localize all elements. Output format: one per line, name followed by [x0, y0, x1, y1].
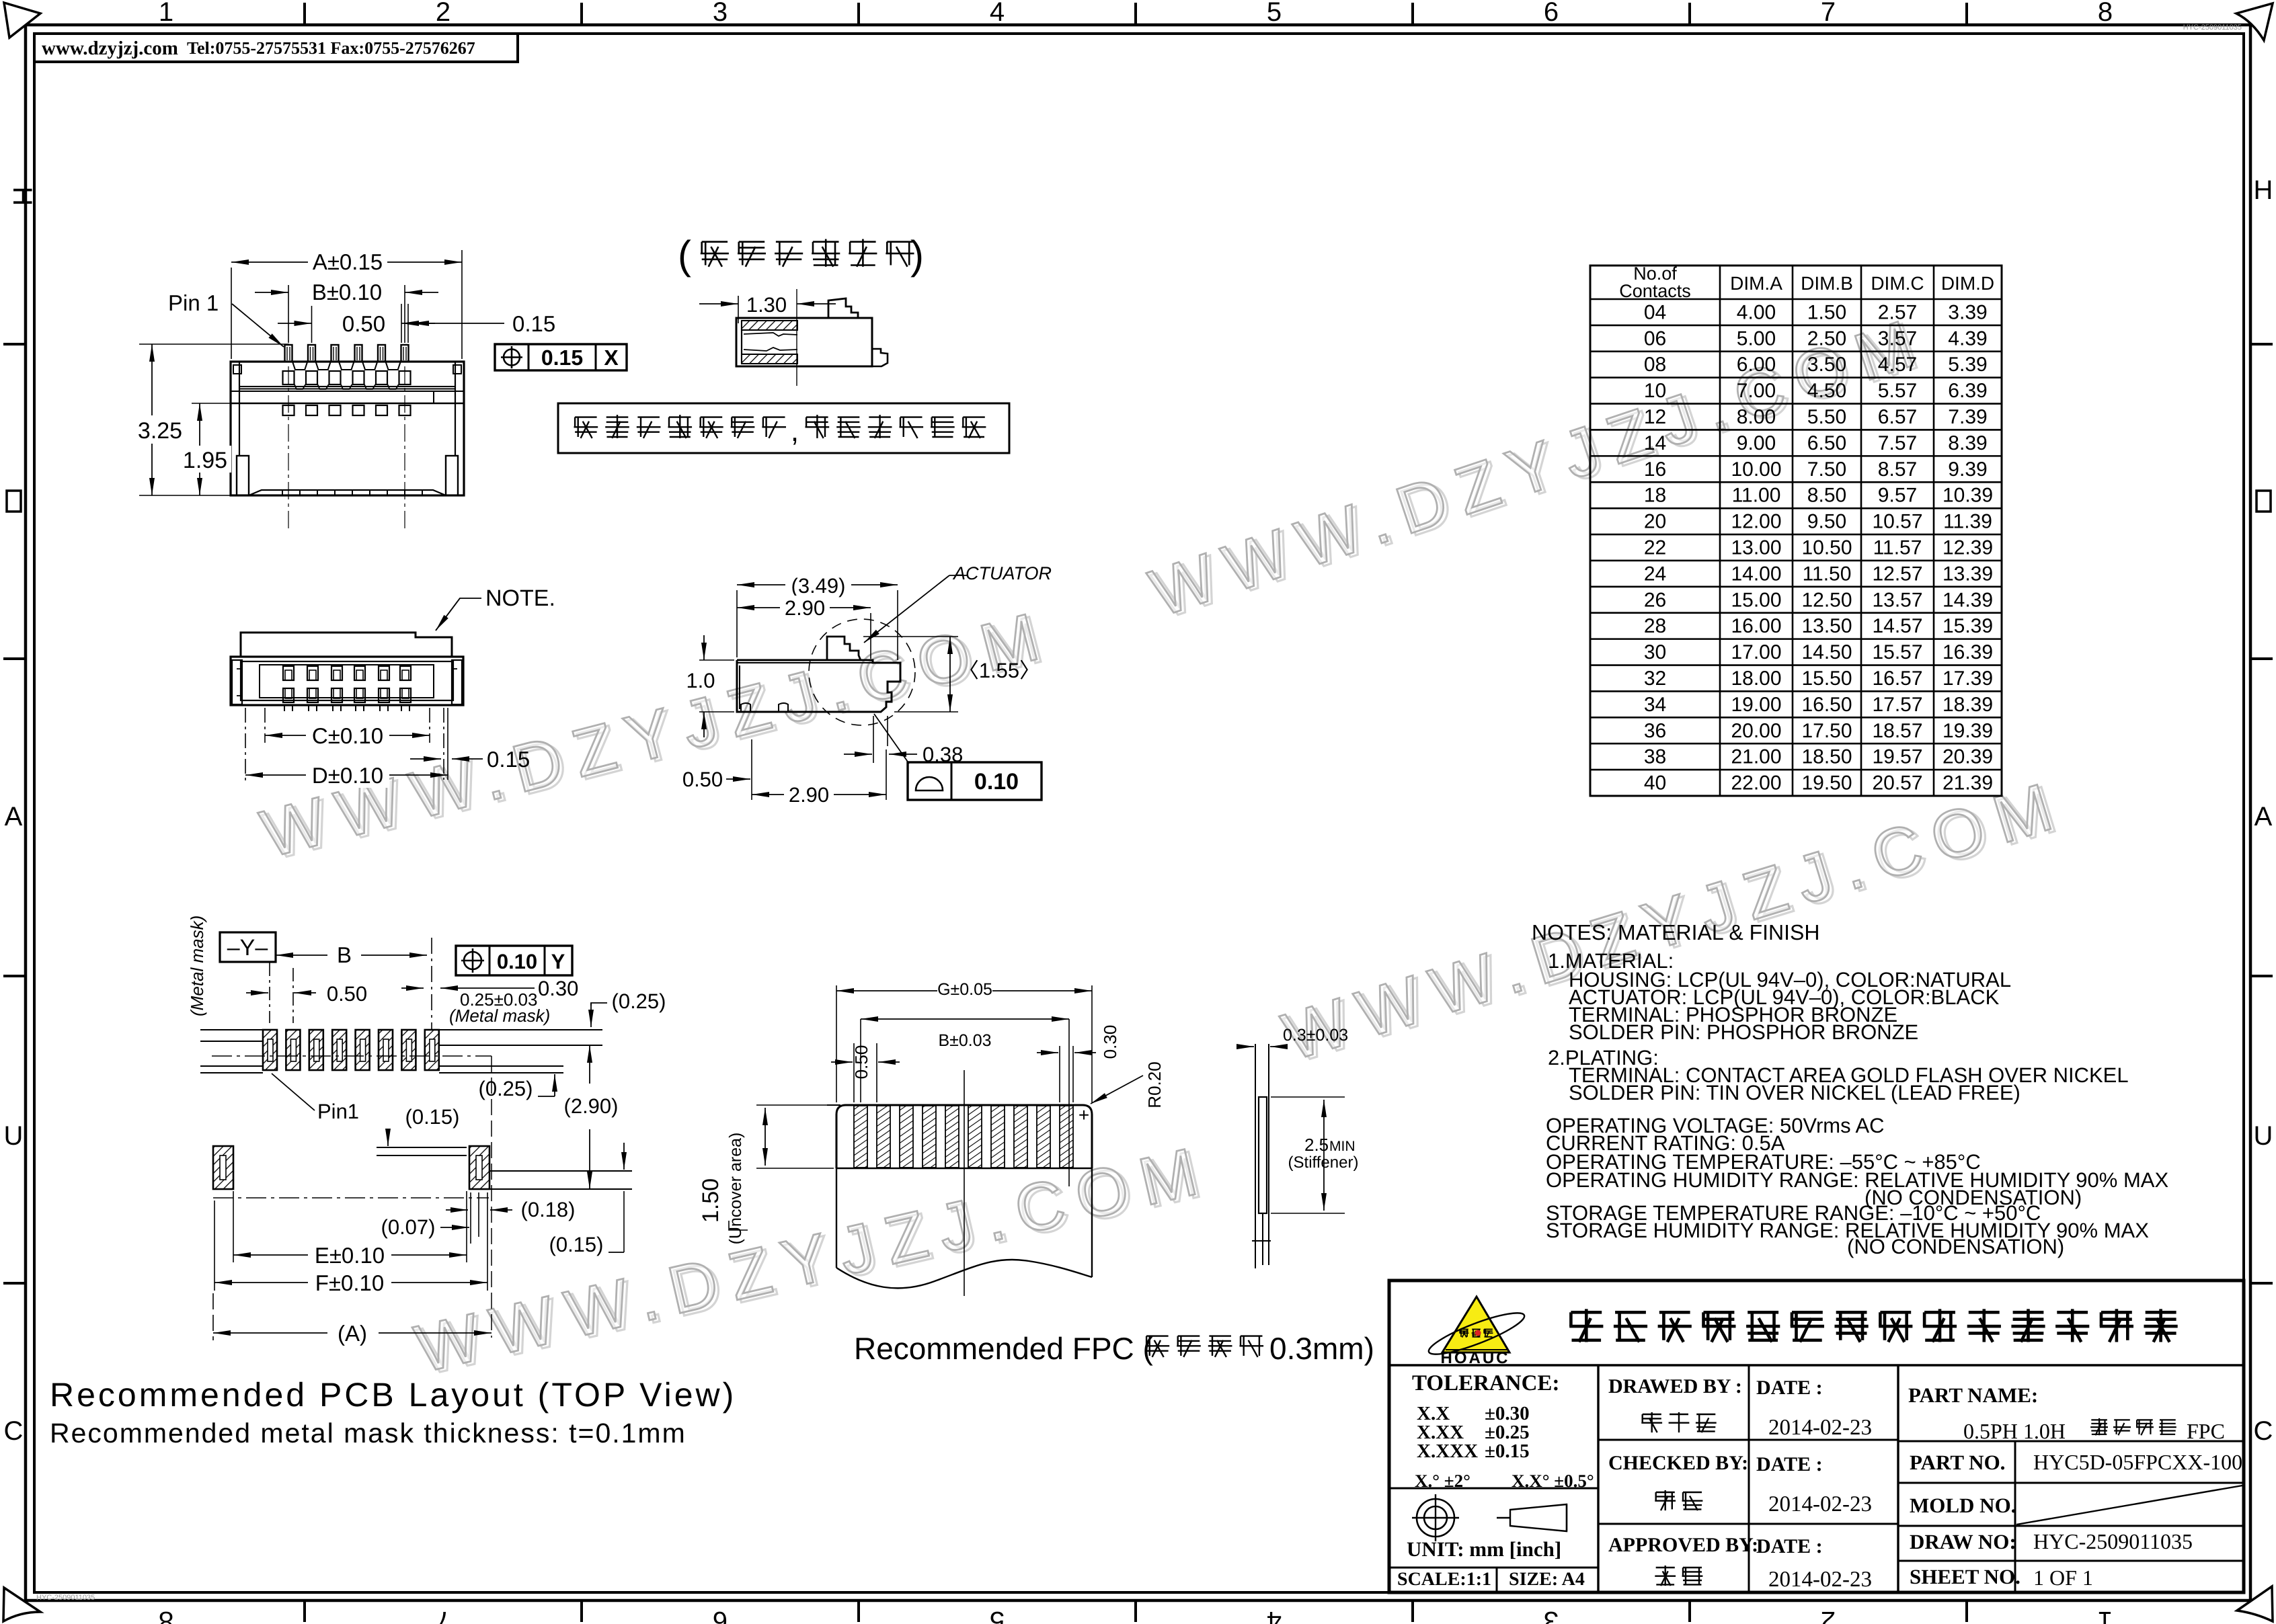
- svg-text:Recommended FPC (: Recommended FPC (: [854, 1331, 1153, 1366]
- svg-text:(: (: [678, 233, 691, 278]
- svg-text:7: 7: [1821, 0, 1836, 27]
- svg-text:11.50: 11.50: [1803, 563, 1852, 585]
- svg-text:A: A: [5, 802, 23, 831]
- svg-text:DRAW NO:: DRAW NO:: [1910, 1530, 2016, 1553]
- svg-text:40: 40: [1644, 772, 1666, 795]
- svg-text:PART NO.: PART NO.: [1910, 1451, 2005, 1474]
- svg-text:Contacts: Contacts: [1619, 281, 1691, 301]
- svg-text:FPC: FPC: [2187, 1419, 2225, 1443]
- svg-text:A: A: [2254, 802, 2273, 831]
- svg-text:17.57: 17.57: [1872, 694, 1922, 716]
- svg-text:2014-02-23: 2014-02-23: [1768, 1416, 1872, 1440]
- svg-text:11.00: 11.00: [1732, 485, 1781, 507]
- svg-text:13.57: 13.57: [1872, 589, 1922, 611]
- svg-text:4.39: 4.39: [1948, 327, 1987, 350]
- svg-text:(Metal mask): (Metal mask): [187, 916, 207, 1016]
- svg-text:38: 38: [1644, 746, 1666, 768]
- svg-text:www.dzyjzj.com: www.dzyjzj.com: [42, 38, 178, 59]
- svg-text:2014-02-23: 2014-02-23: [1768, 1568, 1872, 1592]
- svg-text:0.5PH 1.0H: 0.5PH 1.0H: [1963, 1419, 2066, 1443]
- svg-text:8: 8: [2098, 0, 2113, 27]
- svg-text:5.57: 5.57: [1878, 380, 1917, 402]
- svg-text:9.50: 9.50: [1807, 511, 1846, 533]
- svg-text:C: C: [2254, 1416, 2273, 1446]
- svg-text:ACTUATOR: ACTUATOR: [952, 563, 1052, 583]
- svg-text:20: 20: [1644, 511, 1666, 533]
- svg-text:11.39: 11.39: [1943, 511, 1992, 533]
- svg-text:(3.49): (3.49): [791, 574, 846, 598]
- svg-text:HYC-2509011035: HYC-2509011035: [2183, 24, 2242, 32]
- svg-text:F±0.10: F±0.10: [315, 1270, 385, 1295]
- svg-text:1.50: 1.50: [1807, 301, 1846, 323]
- svg-text:10.50: 10.50: [1801, 537, 1852, 559]
- svg-text:SOLDER PIN: PHOSPHOR BRONZE: SOLDER PIN: PHOSPHOR BRONZE: [1569, 1020, 1918, 1044]
- svg-text:10: 10: [1644, 380, 1666, 402]
- svg-text:Pin1: Pin1: [317, 1100, 359, 1123]
- svg-text:0.15: 0.15: [541, 346, 583, 370]
- svg-text:5.39: 5.39: [1948, 354, 1987, 376]
- svg-text:APPROVED BY:: APPROVED BY:: [1608, 1534, 1758, 1556]
- svg-text:(A): (A): [338, 1321, 367, 1346]
- svg-text:18.39: 18.39: [1943, 694, 1993, 716]
- svg-text:(0.25): (0.25): [612, 989, 666, 1013]
- svg-text:3: 3: [713, 0, 728, 27]
- svg-text:18: 18: [1644, 485, 1666, 507]
- svg-text:16.39: 16.39: [1943, 641, 1993, 663]
- svg-text:4: 4: [990, 0, 1005, 27]
- svg-text:G±0.05: G±0.05: [937, 980, 992, 999]
- svg-text:7.50: 7.50: [1807, 458, 1846, 481]
- svg-text:H: H: [2254, 175, 2273, 205]
- svg-text:15.50: 15.50: [1801, 667, 1852, 690]
- svg-text:22.00: 22.00: [1731, 772, 1781, 795]
- svg-text:2.90: 2.90: [785, 596, 825, 620]
- svg-text:SOLDER PIN: TIN OVER NICKE: SOLDER PIN: TIN OVER NICKEL (LEAD FREE): [1569, 1081, 2020, 1104]
- svg-text:30: 30: [1644, 641, 1666, 663]
- svg-text:NOTES: MATERIAL & FINISH: NOTES: MATERIAL & FINISH: [1532, 920, 1820, 944]
- svg-text:(0.15): (0.15): [405, 1105, 460, 1129]
- svg-text:19.00: 19.00: [1731, 694, 1781, 716]
- svg-text:0.15: 0.15: [512, 311, 555, 336]
- svg-text:X.° ±2°: X.° ±2°: [1415, 1471, 1470, 1491]
- svg-text:DATE :: DATE :: [1756, 1453, 1823, 1475]
- svg-text:1 OF 1: 1 OF 1: [2033, 1566, 2093, 1590]
- svg-text:4: 4: [1267, 1606, 1282, 1624]
- svg-text:DATE :: DATE :: [1756, 1535, 1823, 1557]
- svg-text:18.57: 18.57: [1872, 720, 1922, 742]
- svg-text:21.00: 21.00: [1731, 746, 1781, 768]
- svg-text:1: 1: [159, 0, 173, 27]
- svg-text:10.00: 10.00: [1731, 458, 1781, 481]
- svg-text:TOLERANCE:: TOLERANCE:: [1412, 1371, 1559, 1395]
- svg-text:16.57: 16.57: [1872, 667, 1922, 690]
- svg-text:NOTE.: NOTE.: [485, 585, 555, 611]
- svg-text:Pin 1: Pin 1: [168, 290, 219, 315]
- svg-text:8: 8: [159, 1606, 173, 1624]
- svg-text:14: 14: [1644, 432, 1666, 454]
- svg-text:2.50: 2.50: [1807, 327, 1846, 350]
- svg-text:4.00: 4.00: [1737, 301, 1776, 323]
- svg-text:16.50: 16.50: [1801, 694, 1852, 716]
- svg-text:(0.15): (0.15): [549, 1233, 604, 1256]
- svg-text:7.39: 7.39: [1948, 406, 1987, 428]
- svg-text:5.50: 5.50: [1807, 406, 1846, 428]
- svg-text:DIM.A: DIM.A: [1730, 273, 1782, 294]
- svg-text:(0.07): (0.07): [381, 1215, 436, 1239]
- svg-text:20.00: 20.00: [1731, 720, 1781, 742]
- svg-text:19.39: 19.39: [1943, 720, 1993, 742]
- svg-text:3.50: 3.50: [1807, 354, 1846, 376]
- svg-text:(Metal mask): (Metal mask): [449, 1006, 550, 1026]
- svg-text:17.39: 17.39: [1943, 667, 1993, 690]
- svg-text:26: 26: [1644, 589, 1666, 611]
- svg-text:(0.25): (0.25): [479, 1077, 533, 1100]
- svg-text:3: 3: [1544, 1606, 1559, 1624]
- svg-text:DIM.B: DIM.B: [1801, 273, 1853, 294]
- svg-text:3.39: 3.39: [1948, 301, 1987, 323]
- svg-text:18.00: 18.00: [1731, 667, 1781, 690]
- svg-text:6: 6: [713, 1606, 728, 1624]
- svg-text:36: 36: [1644, 720, 1666, 742]
- svg-text:15.39: 15.39: [1943, 615, 1993, 637]
- svg-text:8.39: 8.39: [1948, 432, 1987, 454]
- svg-text:17.00: 17.00: [1731, 641, 1781, 663]
- svg-text:17.50: 17.50: [1801, 720, 1852, 742]
- svg-text:12.39: 12.39: [1943, 537, 1993, 559]
- svg-text:,: ,: [791, 415, 799, 448]
- svg-text:DRAWED BY :: DRAWED BY :: [1608, 1375, 1742, 1397]
- svg-text:B: B: [337, 942, 352, 967]
- svg-text:14.39: 14.39: [1943, 589, 1993, 611]
- svg-text:6: 6: [1544, 0, 1559, 27]
- svg-text:E±0.10: E±0.10: [315, 1243, 385, 1268]
- svg-text:0.3mm): 0.3mm): [1269, 1331, 1374, 1366]
- svg-text:〈1.55〉: 〈1.55〉: [958, 659, 1040, 682]
- svg-text:5: 5: [990, 1606, 1005, 1624]
- svg-text:08: 08: [1644, 354, 1666, 376]
- svg-text:10.57: 10.57: [1872, 511, 1922, 533]
- svg-text:20.57: 20.57: [1872, 772, 1922, 795]
- svg-text:9.39: 9.39: [1948, 458, 1987, 481]
- svg-text:0.50: 0.50: [327, 982, 367, 1006]
- svg-text:R0.20: R0.20: [1144, 1061, 1165, 1108]
- svg-text:10.39: 10.39: [1943, 485, 1993, 507]
- svg-text:SIZE: A4: SIZE: A4: [1509, 1569, 1585, 1590]
- svg-text:06: 06: [1644, 327, 1666, 350]
- svg-text:U: U: [2254, 1121, 2273, 1151]
- svg-text:19.57: 19.57: [1872, 746, 1922, 768]
- svg-text:A±0.15: A±0.15: [313, 249, 383, 274]
- svg-text:DIM.C: DIM.C: [1871, 273, 1924, 294]
- svg-text:1.50: 1.50: [698, 1178, 723, 1223]
- svg-text:7: 7: [436, 1606, 450, 1624]
- svg-text:7.00: 7.00: [1737, 380, 1776, 402]
- svg-text:B±0.10: B±0.10: [312, 280, 382, 304]
- svg-text:–Y–: –Y–: [227, 935, 268, 961]
- svg-text:32: 32: [1644, 667, 1666, 690]
- svg-text:H: H: [7, 187, 37, 206]
- svg-text:0.10: 0.10: [974, 769, 1019, 795]
- svg-text:0.50: 0.50: [342, 311, 385, 336]
- svg-text:C: C: [4, 1416, 24, 1446]
- svg-text:4.50: 4.50: [1807, 380, 1846, 402]
- svg-text:MIN: MIN: [1329, 1139, 1356, 1154]
- svg-text:2014-02-23: 2014-02-23: [1768, 1492, 1872, 1516]
- svg-text:(2.90): (2.90): [564, 1094, 619, 1118]
- svg-text:X: X: [604, 346, 619, 370]
- svg-text:9.57: 9.57: [1878, 485, 1917, 507]
- svg-text:0.50: 0.50: [682, 768, 723, 791]
- svg-text:6.39: 6.39: [1948, 380, 1987, 402]
- svg-text:2: 2: [436, 0, 450, 27]
- svg-text:DATE :: DATE :: [1756, 1377, 1823, 1399]
- svg-text:): ): [910, 233, 924, 278]
- svg-text:21.39: 21.39: [1943, 772, 1993, 795]
- svg-text:15.57: 15.57: [1872, 641, 1922, 663]
- svg-text:15.00: 15.00: [1731, 589, 1781, 611]
- svg-text:7.57: 7.57: [1878, 432, 1917, 454]
- svg-text:12.57: 12.57: [1872, 563, 1922, 585]
- svg-text:12.50: 12.50: [1801, 589, 1852, 611]
- svg-text:B±0.03: B±0.03: [938, 1031, 991, 1050]
- svg-text:2.90: 2.90: [789, 783, 829, 807]
- svg-text:Tel:0755-27575531 Fax:0755-27: Tel:0755-27575531 Fax:0755-27576267: [187, 38, 475, 58]
- svg-text:HOAUC: HOAUC: [1441, 1349, 1510, 1367]
- svg-text:16.00: 16.00: [1731, 615, 1781, 637]
- svg-text:(0.18): (0.18): [521, 1198, 576, 1221]
- svg-text:X.XXX: X.XXX: [1417, 1440, 1478, 1462]
- svg-text:5.00: 5.00: [1737, 327, 1776, 350]
- svg-text:PART NAME:: PART NAME:: [1908, 1383, 2038, 1407]
- svg-text:34: 34: [1644, 694, 1666, 716]
- svg-text:1: 1: [2098, 1606, 2113, 1624]
- svg-text:CHECKED BY:: CHECKED BY:: [1608, 1452, 1748, 1474]
- svg-text:4.57: 4.57: [1878, 354, 1917, 376]
- svg-text:0.15: 0.15: [487, 747, 530, 772]
- svg-text:0.30: 0.30: [538, 977, 578, 1000]
- svg-text:DIM.D: DIM.D: [1941, 273, 1994, 294]
- svg-text:5: 5: [1267, 0, 1282, 27]
- svg-text:(NO CONDENSATION): (NO CONDENSATION): [1847, 1235, 2064, 1258]
- svg-text:1.30: 1.30: [746, 293, 787, 317]
- svg-text:11.57: 11.57: [1873, 537, 1922, 559]
- svg-text:24: 24: [1644, 563, 1666, 585]
- svg-text:2: 2: [1821, 1606, 1836, 1624]
- svg-text:MOLD NO.: MOLD NO.: [1910, 1494, 2016, 1517]
- svg-text:U: U: [4, 1121, 24, 1151]
- svg-text:1.0: 1.0: [686, 669, 715, 692]
- svg-text:22: 22: [1644, 537, 1666, 559]
- svg-text:13.00: 13.00: [1731, 537, 1781, 559]
- svg-text:HYC-2509011035: HYC-2509011035: [2033, 1529, 2193, 1553]
- svg-text:C±0.10: C±0.10: [312, 723, 383, 748]
- svg-text:18.50: 18.50: [1801, 746, 1852, 768]
- svg-text:0.50: 0.50: [851, 1045, 871, 1080]
- svg-text:9.00: 9.00: [1737, 432, 1776, 454]
- svg-text:20.39: 20.39: [1943, 746, 1993, 768]
- svg-text:6.57: 6.57: [1878, 406, 1917, 428]
- svg-text:16: 16: [1644, 458, 1666, 481]
- svg-text:13.50: 13.50: [1801, 615, 1852, 637]
- svg-text:SCALE:1:1: SCALE:1:1: [1397, 1569, 1491, 1590]
- svg-text:Y: Y: [551, 950, 565, 973]
- svg-text:8.57: 8.57: [1878, 458, 1917, 481]
- svg-text:12: 12: [1644, 406, 1666, 428]
- svg-text:SHEET NO.: SHEET NO.: [1910, 1565, 2020, 1588]
- svg-text:0.10: 0.10: [497, 950, 537, 973]
- svg-text:1.95: 1.95: [183, 448, 227, 473]
- svg-text:6.00: 6.00: [1737, 354, 1776, 376]
- svg-text:D±0.10: D±0.10: [312, 763, 383, 788]
- svg-text:19.50: 19.50: [1801, 772, 1852, 795]
- svg-text:14.50: 14.50: [1801, 641, 1852, 663]
- svg-text:04: 04: [1644, 301, 1666, 323]
- svg-text:3.25: 3.25: [138, 418, 182, 444]
- svg-text:Recommended PCB Layout (TOP: Recommended PCB Layout (TOP View): [50, 1376, 736, 1414]
- svg-text:8.00: 8.00: [1737, 406, 1776, 428]
- svg-text:2.5: 2.5: [1304, 1135, 1329, 1155]
- svg-text:3.57: 3.57: [1878, 327, 1917, 350]
- svg-text:14.57: 14.57: [1872, 615, 1922, 637]
- svg-text:12.00: 12.00: [1731, 511, 1781, 533]
- svg-text:8.50: 8.50: [1807, 485, 1846, 507]
- svg-text:2.57: 2.57: [1878, 301, 1917, 323]
- svg-text:6.50: 6.50: [1807, 432, 1846, 454]
- svg-text:13.39: 13.39: [1943, 563, 1993, 585]
- svg-text:28: 28: [1644, 615, 1666, 637]
- svg-text:±0.15: ±0.15: [1485, 1440, 1530, 1462]
- svg-text:0.30: 0.30: [1100, 1025, 1120, 1059]
- svg-text:Recommended metal mask thic: Recommended metal mask thickness: t=0.1m…: [50, 1418, 686, 1449]
- svg-text:UNIT: mm [inch]: UNIT: mm [inch]: [1407, 1537, 1561, 1561]
- svg-text:+: +: [1078, 1104, 1089, 1125]
- svg-text:(Stiffener): (Stiffener): [1288, 1153, 1359, 1172]
- svg-text:14.00: 14.00: [1731, 563, 1781, 585]
- svg-text:0.3±0.03: 0.3±0.03: [1283, 1026, 1348, 1045]
- svg-text:HYC-2509011035: HYC-2509011035: [36, 1594, 95, 1602]
- svg-text:X.X° ±0.5°: X.X° ±0.5°: [1512, 1471, 1594, 1491]
- svg-text:HYC5D-05FPCXX-100: HYC5D-05FPCXX-100: [2033, 1450, 2242, 1474]
